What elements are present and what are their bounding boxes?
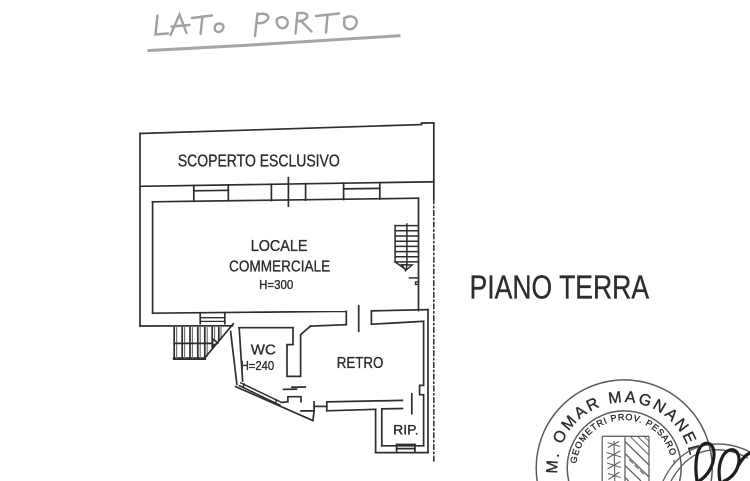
svg-text:GEOMETRI PROV. PESARO - U: GEOMETRI PROV. PESARO - U [0,0,680,464]
svg-text:H=240: H=240 [241,359,275,374]
svg-text:H=300: H=300 [259,278,293,293]
svg-text:RIP.: RIP. [393,422,418,438]
svg-text:M. OMAR MAGNANELLI: M. OMAR MAGNANELLI [0,0,703,474]
svg-text:SCOPERTO ESCLUSIVO: SCOPERTO ESCLUSIVO [178,152,340,171]
svg-text:RETRO: RETRO [337,355,384,372]
svg-text:WC: WC [251,341,276,358]
svg-text:LOCALE: LOCALE [251,237,308,255]
svg-text:PIANO TERRA: PIANO TERRA [470,270,650,306]
svg-text:COMMERCIALE: COMMERCIALE [229,259,330,276]
